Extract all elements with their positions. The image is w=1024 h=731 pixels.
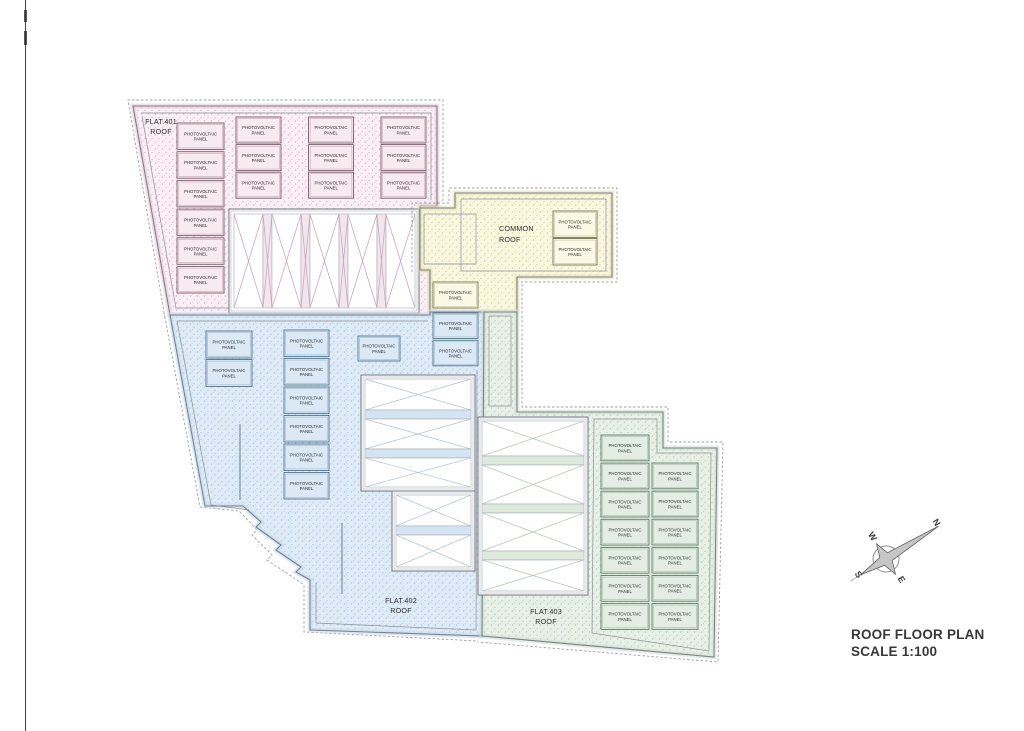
photovoltaic-panel: PHOTOVOLTAICPANEL xyxy=(652,547,698,573)
skylight xyxy=(361,375,475,491)
photovoltaic-panel: PHOTOVOLTAICPANEL xyxy=(284,387,329,414)
photovoltaic-panel: PHOTOVOLTAICPANEL xyxy=(553,239,597,266)
panel-label: PANEL xyxy=(618,505,632,510)
panel-label: PANEL xyxy=(618,448,632,453)
photovoltaic-panel: PHOTOVOLTAICPANEL xyxy=(433,340,478,366)
photovoltaic-panel: PHOTOVOLTAICPANEL xyxy=(177,209,224,236)
photovoltaic-panel: PHOTOVOLTAICPANEL xyxy=(601,604,649,630)
panel-label: PANEL xyxy=(300,372,314,377)
panel-label: PANEL xyxy=(449,295,463,300)
drawing-title: ROOF FLOOR PLAN xyxy=(851,627,985,642)
photovoltaic-panel: PHOTOVOLTAICPANEL xyxy=(358,336,400,361)
flat-402-label-line1: FLAT.402 xyxy=(385,596,417,605)
flat-401-label-line1: FLAT.401 xyxy=(145,117,177,126)
panel-label: PANEL xyxy=(194,223,208,228)
panel-label: PANEL xyxy=(397,130,411,135)
photovoltaic-panel: PHOTOVOLTAICPANEL xyxy=(206,331,252,358)
photovoltaic-panel: PHOTOVOLTAICPANEL xyxy=(177,123,224,150)
plan-geometry: PHOTOVOLTAICPANELPHOTOVOLTAICPANELPHOTOV… xyxy=(128,100,723,662)
photovoltaic-panel: PHOTOVOLTAICPANEL xyxy=(433,313,478,339)
compass-north-label: N xyxy=(931,517,943,528)
photovoltaic-panel: PHOTOVOLTAICPANEL xyxy=(177,267,224,294)
photovoltaic-panel: PHOTOVOLTAICPANEL xyxy=(177,180,224,207)
skylight-cell xyxy=(396,526,471,535)
photovoltaic-panel: PHOTOVOLTAICPANEL xyxy=(601,519,649,545)
panel-label: PANEL xyxy=(324,130,338,135)
photovoltaic-panel: PHOTOVOLTAICPANEL xyxy=(652,519,698,545)
panel-label: PANEL xyxy=(194,137,208,142)
flat-403-label-line1: FLAT.403 xyxy=(530,607,562,616)
panel-label: PANEL xyxy=(668,617,682,622)
panel-label: PANEL xyxy=(449,353,463,358)
panel-label: PANEL xyxy=(300,401,314,406)
photovoltaic-panel: PHOTOVOLTAICPANEL xyxy=(553,211,597,238)
panel-label: PANEL xyxy=(397,158,411,163)
panel-label: PANEL xyxy=(300,344,314,349)
skylight xyxy=(392,491,475,571)
photovoltaic-panel: PHOTOVOLTAICPANEL xyxy=(206,360,252,387)
skylight-cell xyxy=(482,551,584,560)
panel-label: PANEL xyxy=(194,280,208,285)
title-block: ROOF FLOOR PLAN SCALE 1:100 xyxy=(851,627,985,659)
photovoltaic-panel: PHOTOVOLTAICPANEL xyxy=(284,330,329,357)
panel-label: PANEL xyxy=(194,165,208,170)
skylight xyxy=(229,209,419,313)
photovoltaic-panel: PHOTOVOLTAICPANEL xyxy=(381,172,426,198)
panel-label: PANEL xyxy=(668,561,682,566)
region-flat402: PHOTOVOLTAICPANELPHOTOVOLTAICPANELPHOTOV… xyxy=(164,312,484,641)
photovoltaic-panel: PHOTOVOLTAICPANEL xyxy=(236,172,281,198)
photovoltaic-panel: PHOTOVOLTAICPANEL xyxy=(309,145,354,171)
photovoltaic-panel: PHOTOVOLTAICPANEL xyxy=(309,172,354,198)
photovoltaic-panel: PHOTOVOLTAICPANEL xyxy=(433,282,478,308)
roof-floor-plan-drawing: PHOTOVOLTAICPANELPHOTOVOLTAICPANELPHOTOV… xyxy=(0,0,1024,731)
photovoltaic-panel: PHOTOVOLTAICPANEL xyxy=(236,117,281,143)
panel-label: PANEL xyxy=(449,326,463,331)
flat-402-label-line2: ROOF xyxy=(390,606,412,615)
panel-label: PANEL xyxy=(618,617,632,622)
panel-label: PANEL xyxy=(252,158,266,163)
photovoltaic-panel: PHOTOVOLTAICPANEL xyxy=(284,416,329,443)
common-roof-label-line2: ROOF xyxy=(499,235,521,244)
panel-label: PANEL xyxy=(194,251,208,256)
panel-label: PANEL xyxy=(668,533,682,538)
flat-401-label-line2: ROOF xyxy=(150,127,172,136)
panel-label: PANEL xyxy=(668,476,682,481)
photovoltaic-panel: PHOTOVOLTAICPANEL xyxy=(601,547,649,573)
region-flat403: PHOTOVOLTAICPANELPHOTOVOLTAICPANELPHOTOV… xyxy=(478,284,723,662)
panel-label: PANEL xyxy=(372,349,386,354)
panel-label: PANEL xyxy=(668,504,682,509)
skylight-cell xyxy=(482,456,584,465)
photovoltaic-panel: PHOTOVOLTAICPANEL xyxy=(652,575,698,601)
photovoltaic-panel: PHOTOVOLTAICPANEL xyxy=(309,117,354,143)
skylight-cell xyxy=(482,504,584,513)
panel-label: PANEL xyxy=(668,589,682,594)
photovoltaic-panel: PHOTOVOLTAICPANEL xyxy=(601,576,649,602)
photovoltaic-panel: PHOTOVOLTAICPANEL xyxy=(177,152,224,179)
drawing-scale: SCALE 1:100 xyxy=(851,644,937,659)
region-flat401: PHOTOVOLTAICPANELPHOTOVOLTAICPANELPHOTOV… xyxy=(128,100,443,318)
skylight-cell xyxy=(365,449,471,458)
panel-label: PANEL xyxy=(324,186,338,191)
photovoltaic-panel: PHOTOVOLTAICPANEL xyxy=(284,473,329,500)
skylight-cell xyxy=(365,410,471,419)
panel-label: PANEL xyxy=(222,345,236,350)
roof-floor-plan-sheet: PHOTOVOLTAICPANELPHOTOVOLTAICPANELPHOTOV… xyxy=(0,0,1024,731)
flat-403-label-line2: ROOF xyxy=(535,617,557,626)
panel-label: PANEL xyxy=(568,252,582,257)
photovoltaic-panel: PHOTOVOLTAICPANEL xyxy=(652,463,698,489)
photovoltaic-panel: PHOTOVOLTAICPANEL xyxy=(177,238,224,264)
panel-label: PANEL xyxy=(324,158,338,163)
panel-label: PANEL xyxy=(300,486,314,491)
compass-west-label: W xyxy=(866,530,879,543)
panel-label: PANEL xyxy=(618,589,632,594)
photovoltaic-panel: PHOTOVOLTAICPANEL xyxy=(601,435,649,461)
photovoltaic-panel: PHOTOVOLTAICPANEL xyxy=(284,444,329,471)
panel-label: PANEL xyxy=(252,130,266,135)
panel-label: PANEL xyxy=(618,561,632,566)
panel-label: PANEL xyxy=(568,225,582,230)
panel-label: PANEL xyxy=(397,186,411,191)
panel-label: PANEL xyxy=(300,429,314,434)
photovoltaic-panel: PHOTOVOLTAICPANEL xyxy=(381,117,426,143)
panel-label: PANEL xyxy=(252,186,266,191)
common-roof-label-line1: COMMON xyxy=(499,224,534,233)
photovoltaic-panel: PHOTOVOLTAICPANEL xyxy=(236,145,281,171)
photovoltaic-panel: PHOTOVOLTAICPANEL xyxy=(284,359,329,386)
compass-east-label: E xyxy=(896,574,908,584)
panel-label: PANEL xyxy=(222,373,236,378)
photovoltaic-panel: PHOTOVOLTAICPANEL xyxy=(601,463,649,489)
region-common: PHOTOVOLTAICPANELPHOTOVOLTAICPANELPHOTOV… xyxy=(412,188,617,312)
photovoltaic-panel: PHOTOVOLTAICPANEL xyxy=(601,491,649,517)
panel-label: PANEL xyxy=(618,476,632,481)
skylight xyxy=(478,417,588,595)
photovoltaic-panel: PHOTOVOLTAICPANEL xyxy=(381,145,426,171)
panel-label: PANEL xyxy=(194,194,208,199)
photovoltaic-panel: PHOTOVOLTAICPANEL xyxy=(652,491,698,517)
photovoltaic-panel: PHOTOVOLTAICPANEL xyxy=(652,604,698,630)
compass-south-label: S xyxy=(853,569,865,579)
compass-rose: N E S W xyxy=(841,511,948,597)
panel-label: PANEL xyxy=(618,533,632,538)
panel-label: PANEL xyxy=(300,458,314,463)
